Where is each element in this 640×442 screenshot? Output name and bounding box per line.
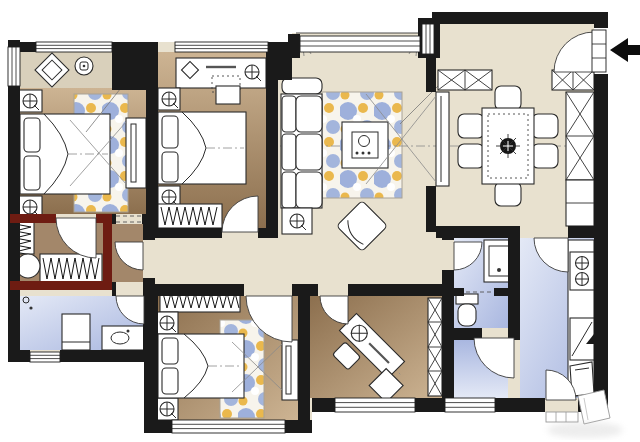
window <box>8 47 20 86</box>
shower-tray <box>62 314 90 350</box>
toilet <box>456 294 478 326</box>
wardrobe-hanging-rail <box>158 204 222 228</box>
bedroom3-double-bed <box>158 334 244 398</box>
desk-stool <box>216 86 240 104</box>
coffee-table-tea-set <box>342 122 388 168</box>
window <box>30 352 60 362</box>
shower-head-icon <box>29 306 32 309</box>
bay-window <box>296 33 424 52</box>
bookshelf <box>428 298 442 396</box>
wardrobe-hanging-rail <box>40 254 102 284</box>
window <box>36 42 112 52</box>
floor-plan <box>0 0 640 442</box>
vanity-sink <box>102 326 144 350</box>
kitchen <box>568 240 594 396</box>
bedroom2-double-bed <box>158 112 246 184</box>
dining-chair <box>458 144 484 168</box>
storage-cabinet <box>566 92 594 226</box>
window <box>335 398 415 412</box>
window <box>175 42 268 52</box>
window <box>445 398 495 412</box>
master-double-bed <box>20 114 110 194</box>
dining-chair <box>532 114 558 138</box>
gas-stove <box>570 252 594 290</box>
dining-chair <box>532 144 558 168</box>
sofa <box>281 78 322 208</box>
shoe-cabinet <box>438 70 492 90</box>
window <box>422 24 434 54</box>
shoe-cabinet <box>552 70 594 90</box>
round-decor-plant <box>75 57 93 75</box>
watermark-smudge <box>547 422 623 438</box>
dining-chair <box>495 86 521 110</box>
window <box>172 420 285 433</box>
burner-icon <box>576 257 589 270</box>
dining-chair <box>458 114 484 138</box>
dining-chair <box>495 182 521 206</box>
burner-icon <box>576 273 589 286</box>
kitchen-cabinet <box>570 318 594 360</box>
